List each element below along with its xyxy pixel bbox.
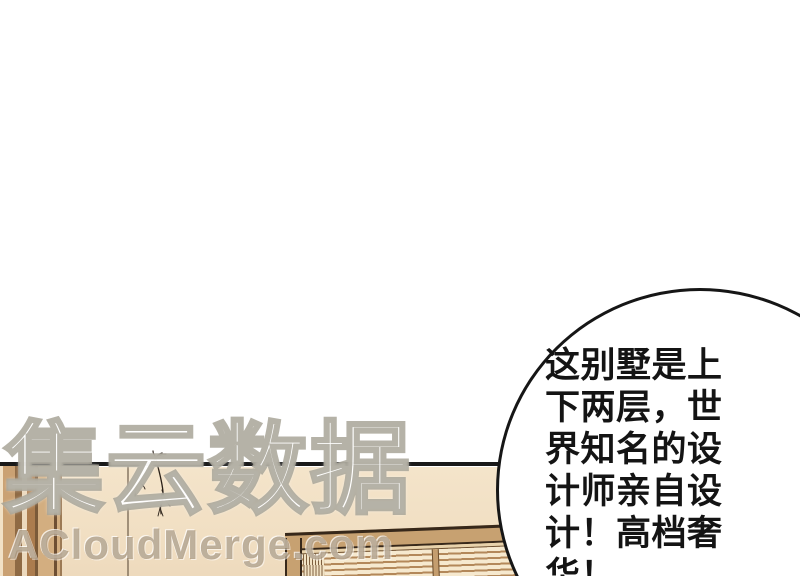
watermark-cn: 集云数据	[4, 420, 412, 520]
speech-line: 下两层，世	[545, 387, 723, 429]
blinds-cord	[432, 549, 441, 576]
speech-line: 计师亲自设	[545, 471, 723, 513]
watermark-site: ACloudMerge.com	[8, 524, 394, 566]
speech-bubble-text: 这别墅是上 下两层，世 界知名的设 计师亲自设 计！高档奢 华！	[545, 345, 723, 576]
speech-line: 华！	[545, 555, 723, 576]
speech-line: 界知名的设	[545, 429, 723, 471]
speech-line: 这别墅是上	[545, 345, 723, 387]
comic-panel: 集云数据 ACloudMerge.com 这别墅是上 下两层，世 界知名的设 计…	[0, 0, 800, 576]
speech-line: 计！高档奢	[545, 513, 723, 555]
